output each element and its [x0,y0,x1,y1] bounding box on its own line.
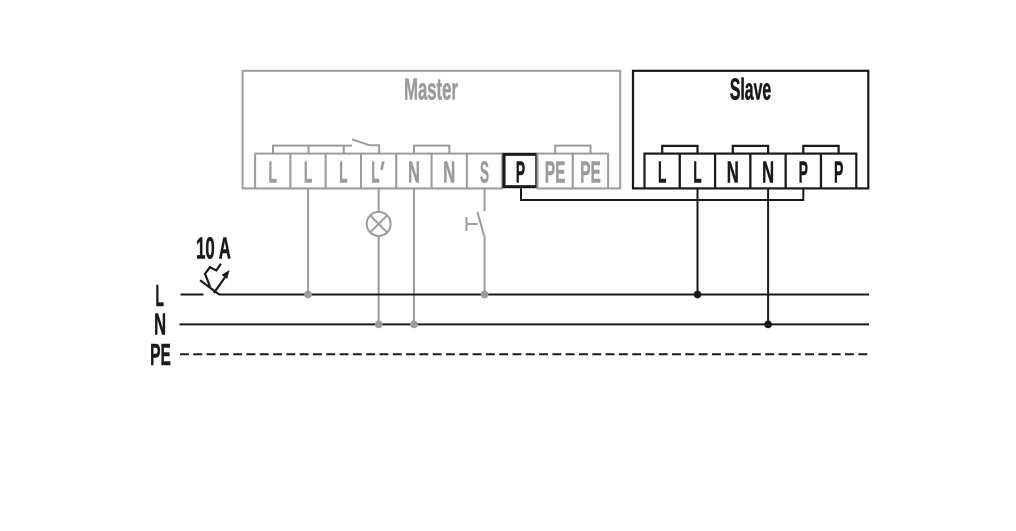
svg-text:L: L [371,155,379,189]
svg-text:L: L [269,155,277,189]
svg-text:P: P [799,155,808,189]
svg-text:N: N [762,155,774,189]
svg-text:L: L [304,155,312,189]
svg-text:L: L [339,155,347,189]
svg-text:L: L [658,155,666,189]
svg-text:N: N [443,155,455,189]
svg-text:PE: PE [150,338,171,372]
svg-text:S: S [480,155,489,189]
svg-text:N: N [408,155,420,189]
svg-text:Master: Master [404,72,458,106]
svg-text:N: N [154,308,166,342]
svg-text:PE: PE [580,155,601,189]
svg-text:10 A: 10 A [196,231,231,265]
svg-text:N: N [727,155,739,189]
svg-text:L: L [693,155,701,189]
svg-text:P: P [516,155,525,189]
svg-text:Slave: Slave [730,72,771,106]
svg-text:P: P [834,155,843,189]
svg-text:PE: PE [545,155,566,189]
